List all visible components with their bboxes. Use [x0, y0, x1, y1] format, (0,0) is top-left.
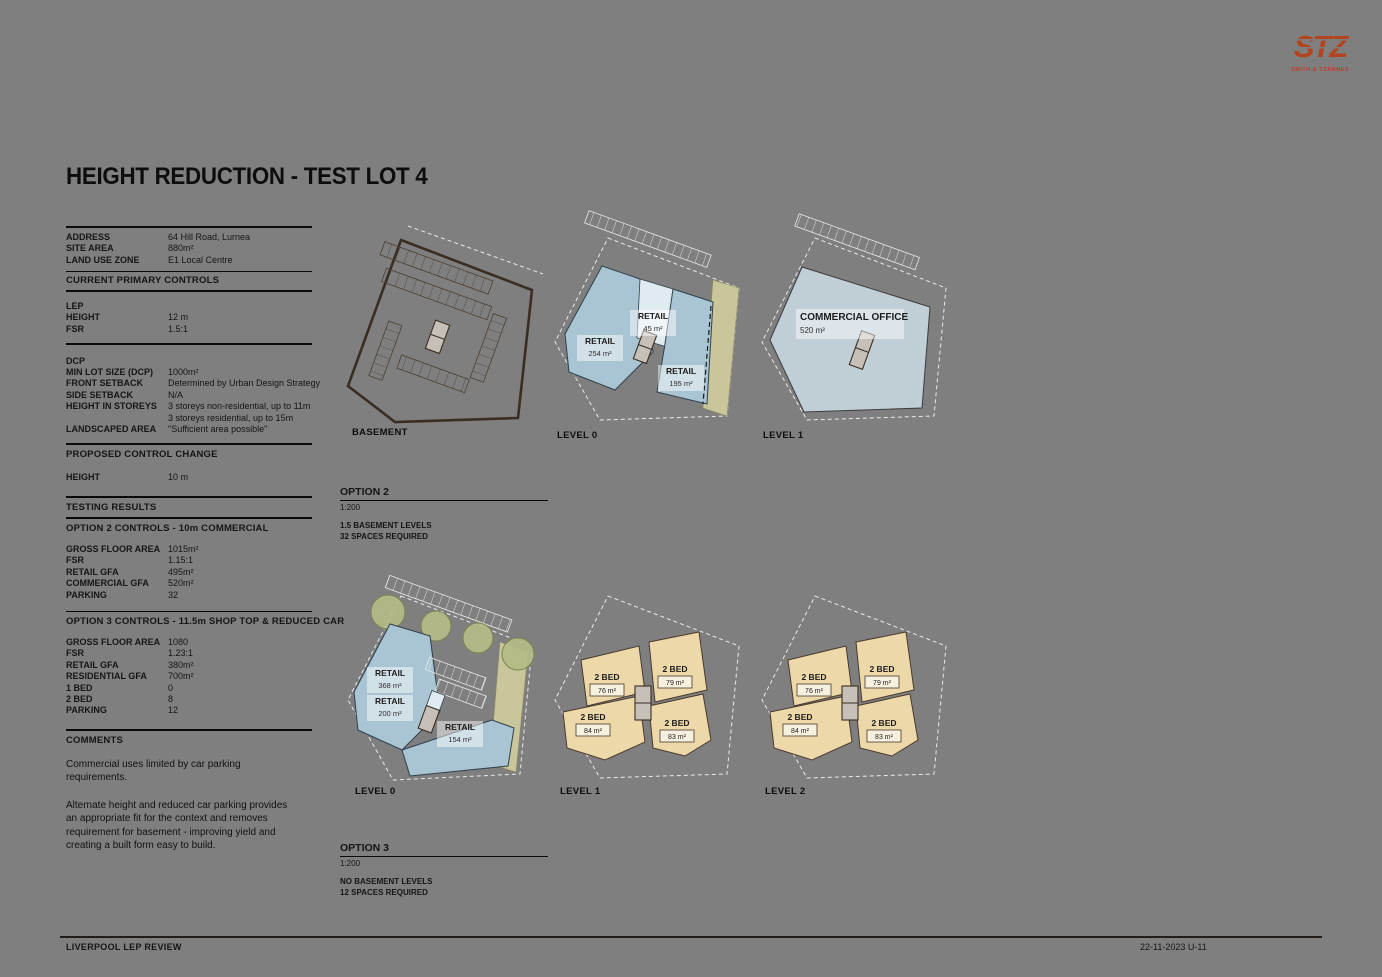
row-label: 1 BED	[66, 683, 168, 694]
svg-text:2 BED: 2 BED	[662, 664, 687, 674]
table-row: FSR 1.23:1	[66, 648, 312, 659]
plan-level0-option3: RETAIL 368 m² RETAIL 200 m² RETAIL 154 m…	[338, 580, 548, 795]
logo-stripe	[1290, 47, 1350, 49]
svg-text:79 m²: 79 m²	[666, 680, 685, 687]
footer-project-title: LIVERPOOL LEP REVIEW	[66, 942, 182, 952]
plan-level1-option2: COMMERCIAL OFFICE 520 m²	[752, 222, 962, 437]
page-title: HEIGHT REDUCTION - TEST LOT 4	[66, 163, 427, 191]
row-value: 32	[168, 590, 312, 601]
svg-text:2 BED: 2 BED	[871, 718, 896, 728]
table-row: HEIGHT 12 m	[66, 312, 312, 323]
option2-scale: 1:200	[340, 503, 548, 512]
unit-label: 2 BED 84 m²	[783, 712, 817, 736]
row-label: HEIGHT	[66, 472, 168, 483]
option3-scale: 1:200	[340, 859, 548, 868]
row-value: 3 storeys residential, up to 15m	[168, 413, 312, 424]
table-row: SITE AREA 880m²	[66, 243, 312, 254]
svg-text:RETAIL: RETAIL	[585, 336, 615, 346]
row-value: 1.15:1	[168, 555, 312, 566]
row-value: 12	[168, 705, 312, 716]
drawing-sheet: STZ SMITH & TZANNES HEIGHT REDUCTION - T…	[0, 0, 1382, 977]
svg-text:COMMERCIAL OFFICE: COMMERCIAL OFFICE	[800, 312, 908, 323]
table-row: HEIGHT 10 m	[66, 472, 312, 483]
comment-paragraph: Alternate height and reduced car parking…	[66, 799, 288, 853]
row-label: RESIDENTIAL GFA	[66, 671, 168, 682]
svg-text:2 BED: 2 BED	[664, 718, 689, 728]
row-label: PARKING	[66, 590, 168, 601]
svg-text:2 BED: 2 BED	[594, 672, 619, 682]
unit-label: RETAIL 368 m²	[367, 667, 413, 693]
parking-bays	[470, 314, 506, 383]
plan-level0-option2: RETAIL 254 m² RETAIL 45 m² RETAIL 195 m²	[545, 222, 755, 437]
table-row: 2 BED 8	[66, 694, 312, 705]
commercial-floorplate	[770, 267, 930, 412]
svg-text:RETAIL: RETAIL	[375, 668, 405, 678]
svg-text:200 m²: 200 m²	[378, 709, 402, 718]
row-label: GROSS FLOOR AREA	[66, 637, 168, 648]
section-current-controls: CURRENT PRIMARY CONTROLS	[66, 271, 312, 292]
unit-label: 2 BED 79 m²	[865, 664, 899, 688]
table-row: RETAIL GFA 495m²	[66, 567, 312, 578]
unit-label: 2 BED 76 m²	[590, 672, 624, 696]
option2-note: 32 SPACES REQUIRED	[340, 532, 548, 543]
svg-text:2 BED: 2 BED	[580, 712, 605, 722]
row-label: ADDRESS	[66, 232, 168, 243]
controls-panel: ADDRESS 64 Hill Road, Lurnea SITE AREA 8…	[66, 226, 312, 867]
row-value: E1 Local Centre	[168, 255, 312, 266]
row-value: 1000m²	[168, 367, 312, 378]
svg-text:76 m²: 76 m²	[805, 688, 824, 695]
row-label: LANDSCAPED AREA	[66, 424, 168, 435]
row-label: COMMERCIAL GFA	[66, 578, 168, 589]
building-core	[425, 320, 449, 353]
section-heading: CURRENT PRIMARY CONTROLS	[66, 275, 312, 286]
plan-label-level2-option3: LEVEL 2	[765, 786, 805, 797]
row-value: "Sufficient area possible"	[168, 424, 312, 435]
row-label: FSR	[66, 648, 168, 659]
option3-note: 12 SPACES REQUIRED	[340, 888, 548, 899]
svg-text:45 m²: 45 m²	[643, 324, 663, 333]
svg-text:84 m²: 84 m²	[791, 728, 810, 735]
section-heading: COMMENTS	[66, 735, 312, 746]
table-row: PARKING 32	[66, 590, 312, 601]
table-row: FRONT SETBACK Determined by Urban Design…	[66, 378, 312, 389]
table-row: PARKING 12	[66, 705, 312, 716]
row-value: 8	[168, 694, 312, 705]
table-row: LAND USE ZONE E1 Local Centre	[66, 255, 312, 266]
unit-label: 2 BED 84 m²	[576, 712, 610, 736]
option3-note: NO BASEMENT LEVELS	[340, 877, 548, 888]
option3-caption: OPTION 3 1:200 NO BASEMENT LEVELS 12 SPA…	[340, 842, 548, 898]
option2-caption: OPTION 2 1:200 1.5 BASEMENT LEVELS 32 SP…	[340, 486, 548, 542]
svg-text:2 BED: 2 BED	[787, 712, 812, 722]
group-heading: LEP	[66, 300, 312, 312]
row-label: RETAIL GFA	[66, 567, 168, 578]
svg-text:84 m²: 84 m²	[584, 728, 603, 735]
svg-text:79 m²: 79 m²	[873, 680, 892, 687]
row-label: FSR	[66, 555, 168, 566]
comment-paragraph: Commercial uses limited by car parking r…	[66, 758, 288, 785]
parking-bays	[369, 321, 402, 380]
table-row: COMMERCIAL GFA 520m²	[66, 578, 312, 589]
option2-title: OPTION 2	[340, 486, 548, 501]
row-label: RETAIL GFA	[66, 660, 168, 671]
table-row: GROSS FLOOR AREA 1080	[66, 637, 312, 648]
parking-bays	[397, 355, 469, 393]
section-heading: PROPOSED CONTROL CHANGE	[66, 449, 312, 460]
option3-title: OPTION 3	[340, 842, 548, 857]
row-label: SITE AREA	[66, 243, 168, 254]
unit-label: 2 BED 76 m²	[797, 672, 831, 696]
table-row: 3 storeys residential, up to 15m	[66, 413, 312, 424]
svg-text:2 BED: 2 BED	[801, 672, 826, 682]
plan-level1-option3: 2 BED 76 m² 2 BED 79 m² 2 BED 84 m² 2 BE…	[545, 580, 755, 790]
section-heading: OPTION 2 CONTROLS - 10m COMMERCIAL	[66, 523, 312, 534]
row-value: 1015m²	[168, 544, 312, 555]
svg-text:254 m²: 254 m²	[588, 349, 612, 358]
table-row: RETAIL GFA 380m²	[66, 660, 312, 671]
table-row: RESIDENTIAL GFA 700m²	[66, 671, 312, 682]
row-label: HEIGHT IN STOREYS	[66, 401, 168, 412]
unit-label: RETAIL 195 m²	[658, 365, 704, 391]
row-label: HEIGHT	[66, 312, 168, 323]
tree	[463, 623, 493, 653]
table-row: GROSS FLOOR AREA 1015m²	[66, 544, 312, 555]
section-heading: OPTION 3 CONTROLS - 11.5m SHOP TOP & RED…	[66, 616, 312, 627]
tree	[371, 595, 405, 629]
row-value: 880m²	[168, 243, 312, 254]
plan-label-level0-option3: LEVEL 0	[355, 786, 395, 797]
row-value: 3 storeys non-residential, up to 11m	[168, 401, 312, 412]
unit-label: 2 BED 79 m²	[658, 664, 692, 688]
table-row: ADDRESS 64 Hill Road, Lurnea	[66, 232, 312, 243]
svg-text:83 m²: 83 m²	[875, 734, 894, 741]
section-heading: TESTING RESULTS	[66, 502, 312, 513]
row-label: MIN LOT SIZE (DCP)	[66, 367, 168, 378]
comments-block: Commercial uses limited by car parking r…	[66, 758, 312, 853]
row-label: LAND USE ZONE	[66, 255, 168, 266]
row-label: FSR	[66, 324, 168, 335]
footer-date-page: 22-11-2023 U-11	[1140, 942, 1207, 952]
row-value: 1.5:1	[168, 324, 312, 335]
row-value: 10 m	[168, 472, 312, 483]
unit-label: COMMERCIAL OFFICE 520 m²	[796, 309, 908, 339]
logo-stripe	[1290, 39, 1350, 41]
logo-subtext: SMITH & TZANNES	[1291, 67, 1349, 73]
unit-label: 2 BED 83 m²	[660, 718, 694, 742]
group-heading: DCP	[66, 355, 312, 367]
row-value: 495m²	[168, 567, 312, 578]
table-row: MIN LOT SIZE (DCP) 1000m²	[66, 367, 312, 378]
table-row: SIDE SETBACK N/A	[66, 390, 312, 401]
table-row: HEIGHT IN STOREYS 3 storeys non-resident…	[66, 401, 312, 412]
tree	[502, 638, 534, 670]
plan-label-level1-option3: LEVEL 1	[560, 786, 600, 797]
table-row: LANDSCAPED AREA "Sufficient area possibl…	[66, 424, 312, 435]
logo-mark: STZ	[1294, 29, 1350, 64]
footer-rule	[60, 936, 1322, 938]
row-label: GROSS FLOOR AREA	[66, 544, 168, 555]
plan-basement	[338, 222, 548, 432]
unit-label: 2 BED 83 m²	[867, 718, 901, 742]
row-label: FRONT SETBACK	[66, 378, 168, 389]
svg-text:520 m²: 520 m²	[800, 326, 825, 335]
svg-text:368 m²: 368 m²	[378, 681, 402, 690]
plan-label-level1-option2: LEVEL 1	[763, 430, 803, 441]
svg-text:RETAIL: RETAIL	[666, 366, 696, 376]
svg-text:154 m²: 154 m²	[448, 735, 472, 744]
logo-stz: STZ SMITH & TZANNES	[1282, 24, 1358, 78]
row-label: 2 BED	[66, 694, 168, 705]
option2-note: 1.5 BASEMENT LEVELS	[340, 521, 548, 532]
row-label	[66, 413, 168, 424]
svg-text:195 m²: 195 m²	[669, 379, 693, 388]
unit-label: RETAIL 45 m²	[630, 310, 676, 336]
svg-text:RETAIL: RETAIL	[375, 696, 405, 706]
building-core	[635, 686, 651, 720]
plan-label-basement: BASEMENT	[352, 427, 408, 438]
svg-text:2 BED: 2 BED	[869, 664, 894, 674]
unit-label: RETAIL 254 m²	[577, 335, 623, 361]
row-value: 1080	[168, 637, 312, 648]
unit-label: RETAIL 200 m²	[367, 695, 413, 721]
row-value: 380m²	[168, 660, 312, 671]
table-row: FSR 1.5:1	[66, 324, 312, 335]
row-value: 1.23:1	[168, 648, 312, 659]
svg-text:RETAIL: RETAIL	[638, 311, 668, 321]
svg-text:83 m²: 83 m²	[668, 734, 687, 741]
row-label: SIDE SETBACK	[66, 390, 168, 401]
row-value: Determined by Urban Design Strategy	[168, 378, 320, 389]
svg-text:RETAIL: RETAIL	[445, 722, 475, 732]
row-value: 12 m	[168, 312, 312, 323]
row-value: 700m²	[168, 671, 312, 682]
plan-level2-option3: 2 BED 76 m² 2 BED 79 m² 2 BED 84 m² 2 BE…	[752, 580, 962, 790]
table-row: FSR 1.15:1	[66, 555, 312, 566]
unit-label: RETAIL 154 m²	[437, 721, 483, 747]
row-value: N/A	[168, 390, 312, 401]
building-core	[842, 686, 858, 720]
table-row: 1 BED 0	[66, 683, 312, 694]
svg-text:76 m²: 76 m²	[598, 688, 617, 695]
row-value: 0	[168, 683, 312, 694]
plan-label-level0-option2: LEVEL 0	[557, 430, 597, 441]
row-value: 64 Hill Road, Lurnea	[168, 232, 312, 243]
context-parking	[585, 211, 712, 268]
row-value: 520m²	[168, 578, 312, 589]
row-label: PARKING	[66, 705, 168, 716]
